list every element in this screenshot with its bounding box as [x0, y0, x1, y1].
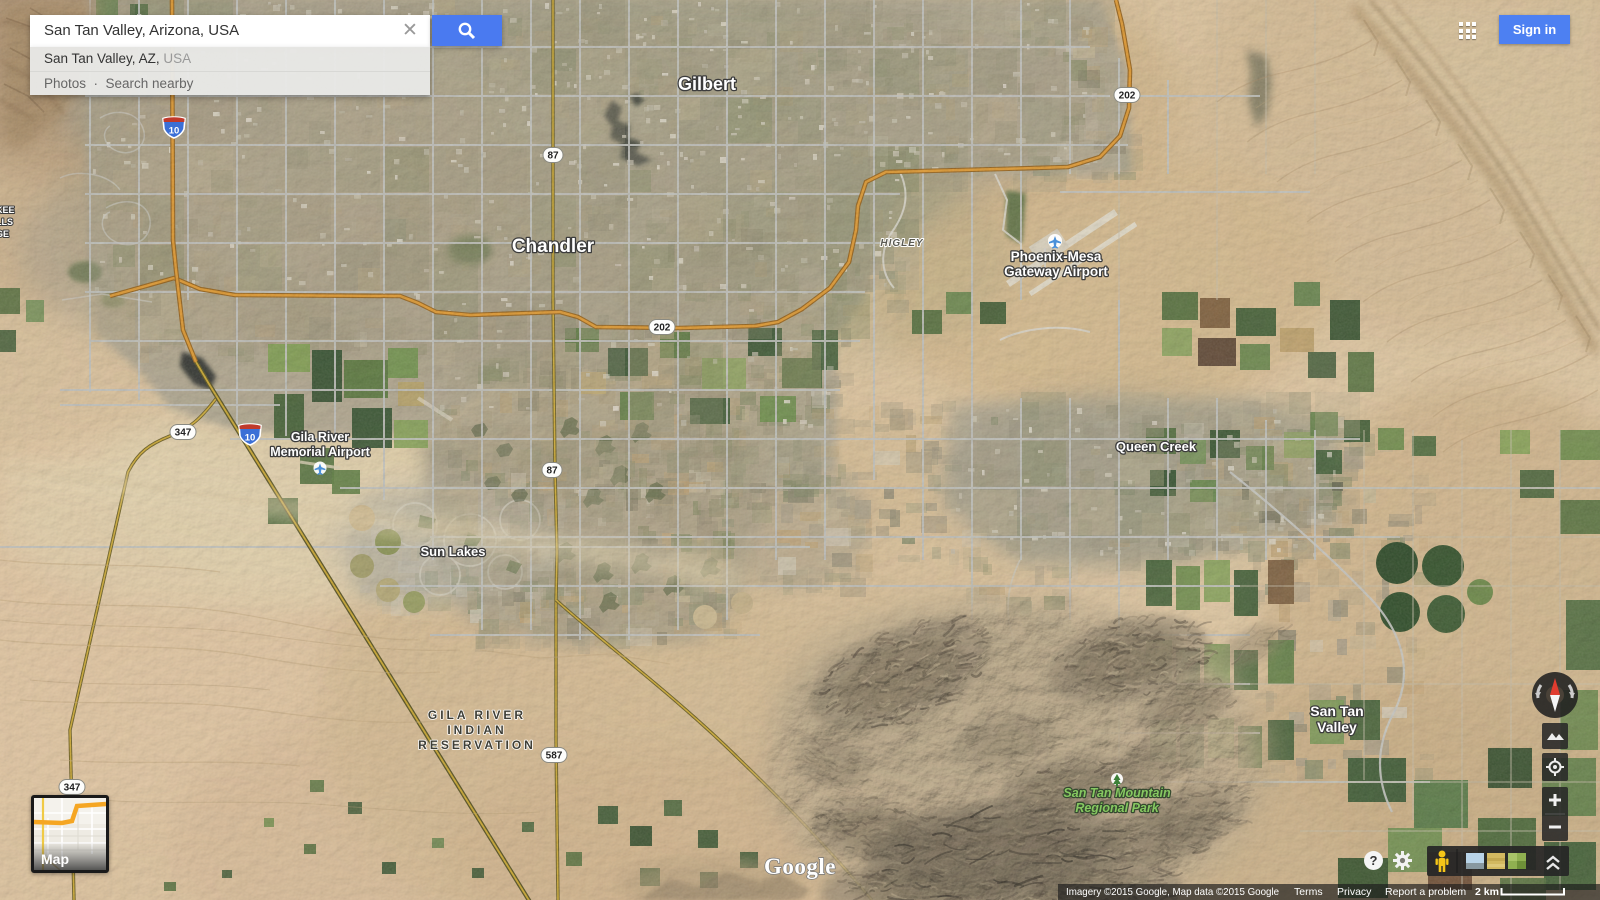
- svg-text:KEE: KEE: [0, 205, 15, 215]
- svg-text:347: 347: [175, 428, 192, 439]
- svg-text:RESERVATION: RESERVATION: [418, 738, 536, 752]
- svg-text:?: ?: [1370, 853, 1378, 868]
- svg-text:GE: GE: [0, 229, 9, 239]
- svg-text:Google: Google: [764, 854, 836, 879]
- svg-text:10: 10: [245, 433, 256, 444]
- svg-text:San Tan: San Tan: [1310, 703, 1363, 719]
- svg-text:87: 87: [546, 466, 558, 477]
- svg-text:202: 202: [1119, 91, 1136, 102]
- svg-text:San Tan Mountain: San Tan Mountain: [1063, 786, 1171, 800]
- svg-text:Memorial Airport: Memorial Airport: [270, 445, 370, 459]
- svg-text:Gila River: Gila River: [291, 430, 349, 444]
- svg-text:Gilbert: Gilbert: [678, 74, 736, 94]
- svg-text:Sun Lakes: Sun Lakes: [420, 544, 485, 559]
- svg-text:HIGLEY: HIGLEY: [880, 238, 924, 249]
- svg-text:Map: Map: [41, 851, 69, 867]
- svg-text:Gateway Airport: Gateway Airport: [1004, 264, 1108, 279]
- svg-text:Valley: Valley: [1317, 719, 1357, 735]
- svg-text:202: 202: [654, 323, 671, 334]
- svg-text:347: 347: [64, 783, 81, 794]
- svg-text:87: 87: [547, 151, 559, 162]
- svg-text:GILA RIVER: GILA RIVER: [428, 708, 526, 722]
- svg-text:Queen Creek: Queen Creek: [1116, 439, 1197, 454]
- svg-text:10: 10: [169, 126, 180, 137]
- svg-text:587: 587: [546, 751, 563, 762]
- svg-text:INDIAN: INDIAN: [447, 723, 506, 737]
- svg-text:Phoenix-Mesa: Phoenix-Mesa: [1011, 249, 1102, 264]
- svg-text:LLS: LLS: [0, 217, 13, 227]
- svg-text:Regional Park: Regional Park: [1075, 801, 1159, 815]
- svg-text:Chandler: Chandler: [512, 236, 595, 257]
